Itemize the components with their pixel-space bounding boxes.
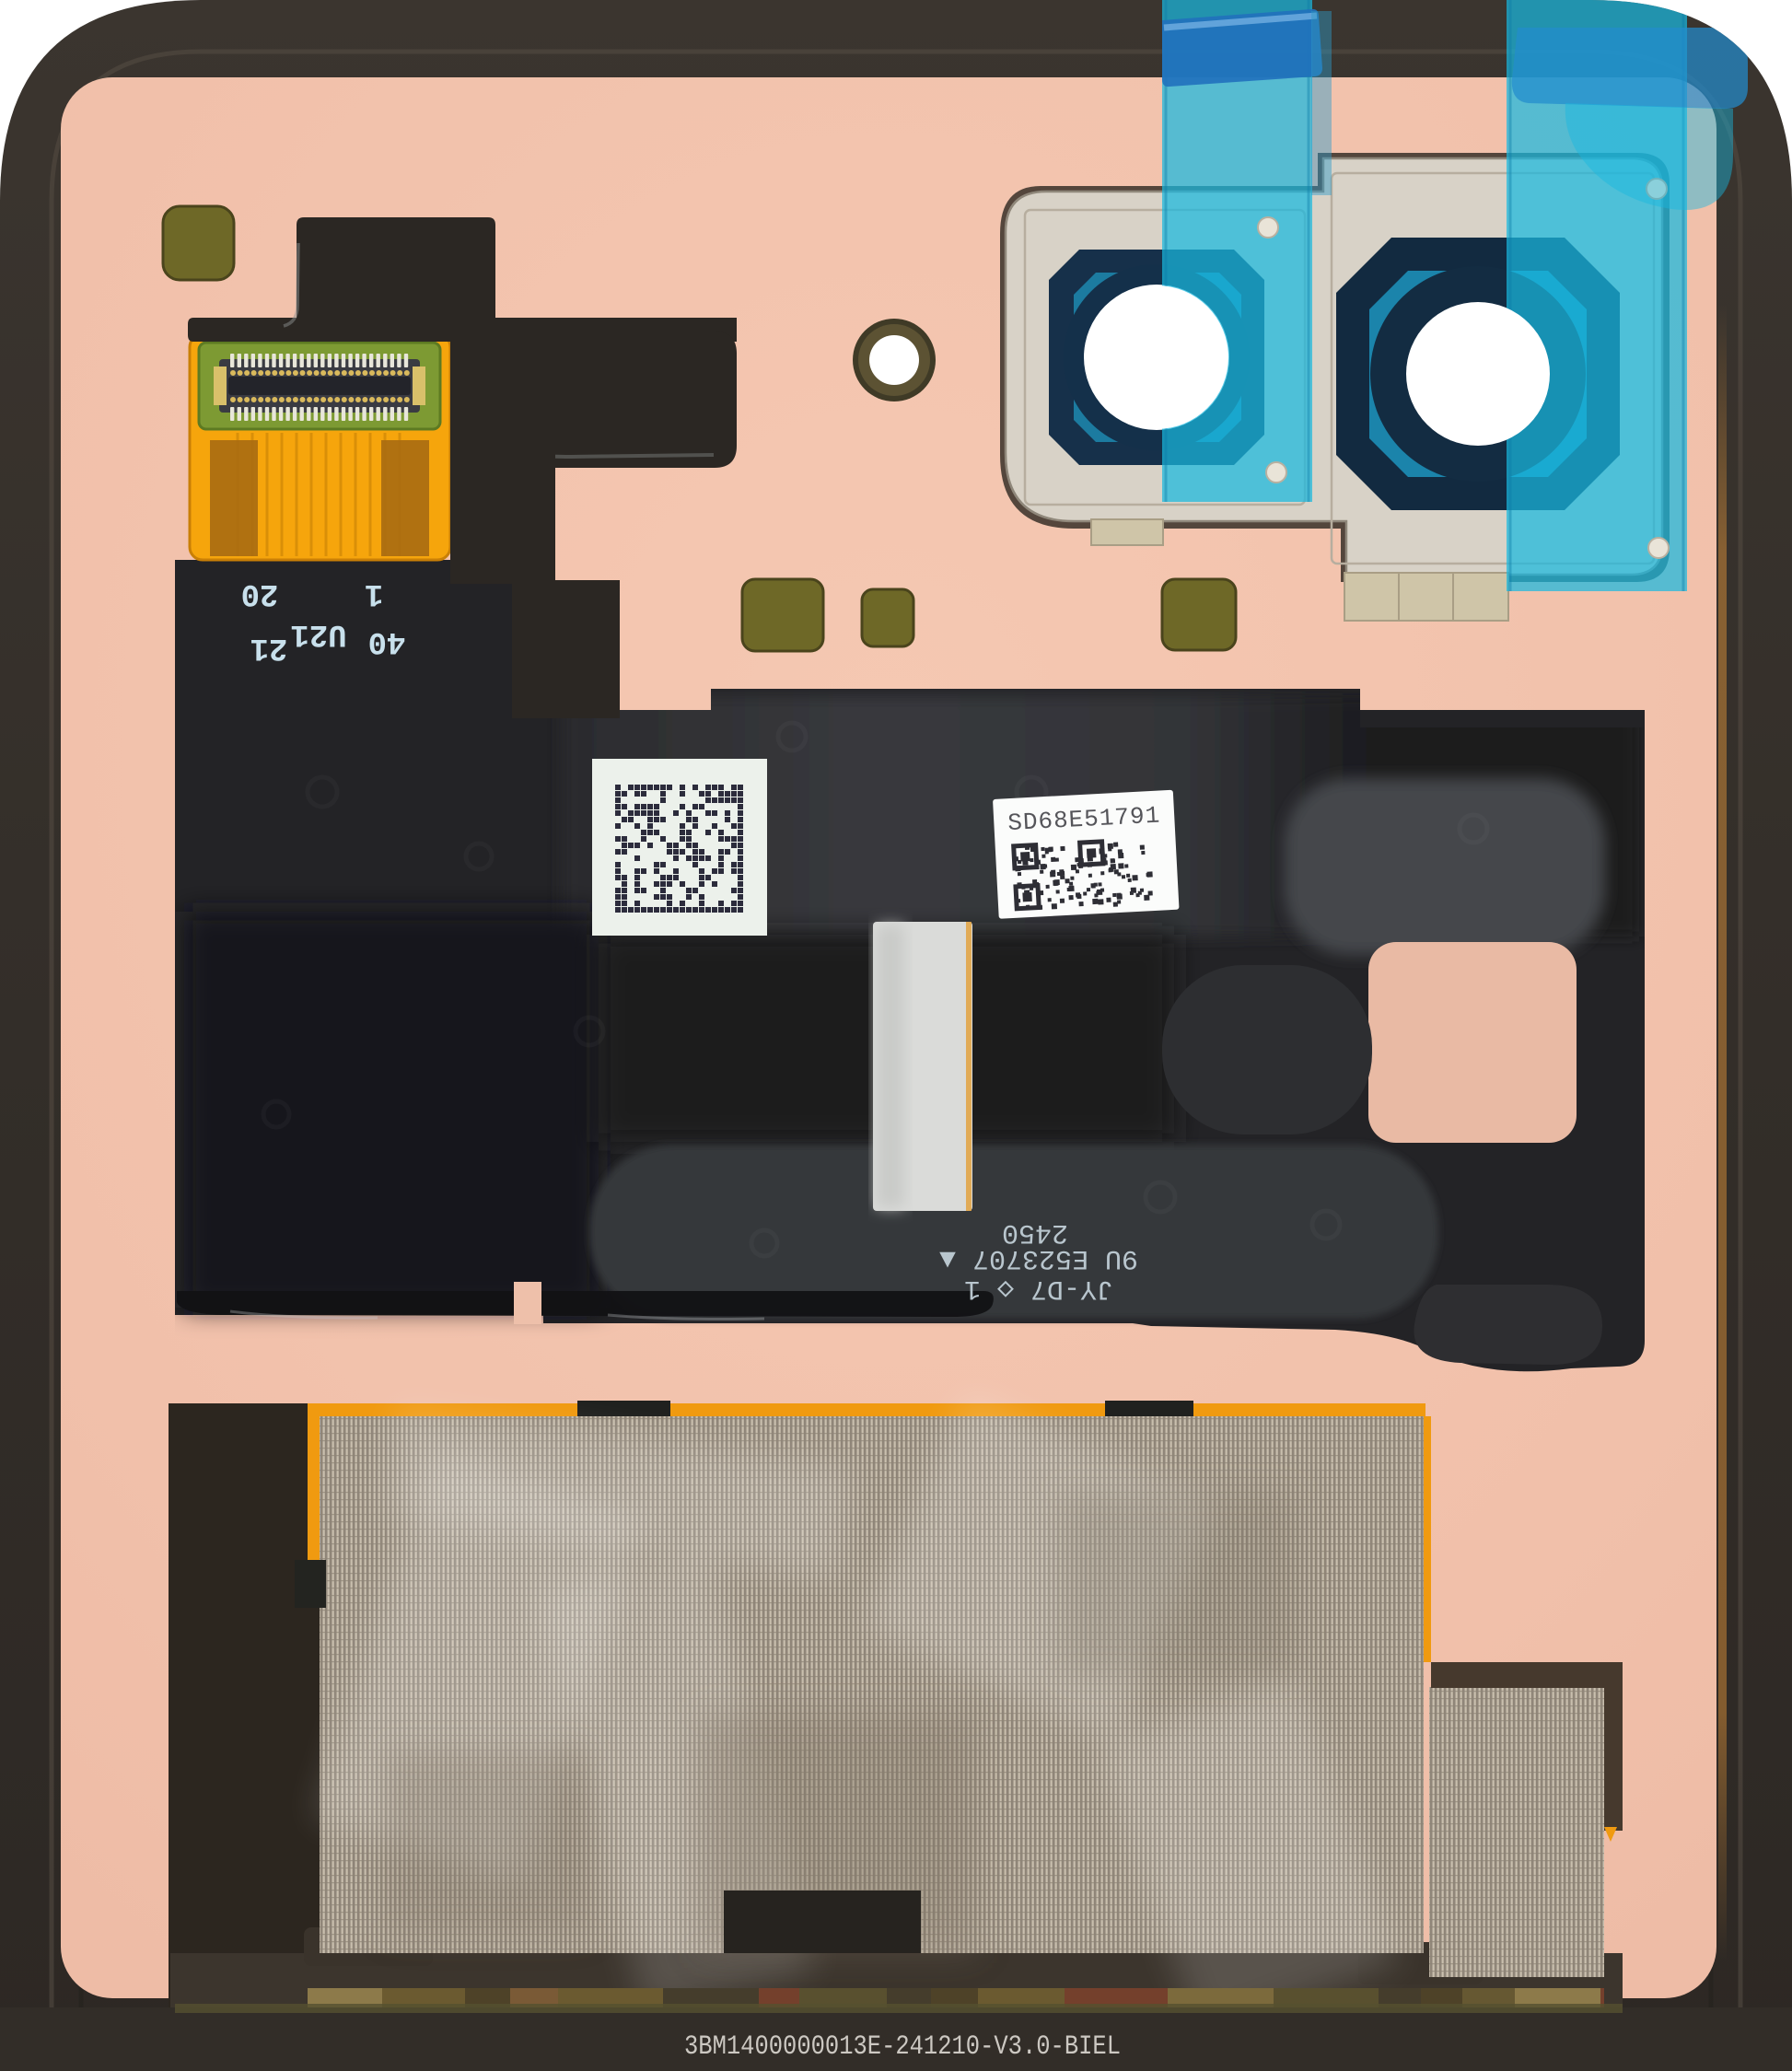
svg-text:2450: 2450 (1002, 1216, 1068, 1248)
svg-text:JY-D7 ◇ 1: JY-D7 ◇ 1 (964, 1273, 1113, 1304)
svg-text:40: 40 (368, 623, 406, 658)
svg-text:20: 20 (241, 576, 279, 611)
svg-text:3BM1400000013E-241210-V3.0-BIE: 3BM1400000013E-241210-V3.0-BIEL (684, 2031, 1121, 2063)
svg-text:U21: U21 (290, 616, 346, 651)
svg-text:1: 1 (365, 576, 383, 611)
svg-text:21: 21 (250, 630, 288, 665)
